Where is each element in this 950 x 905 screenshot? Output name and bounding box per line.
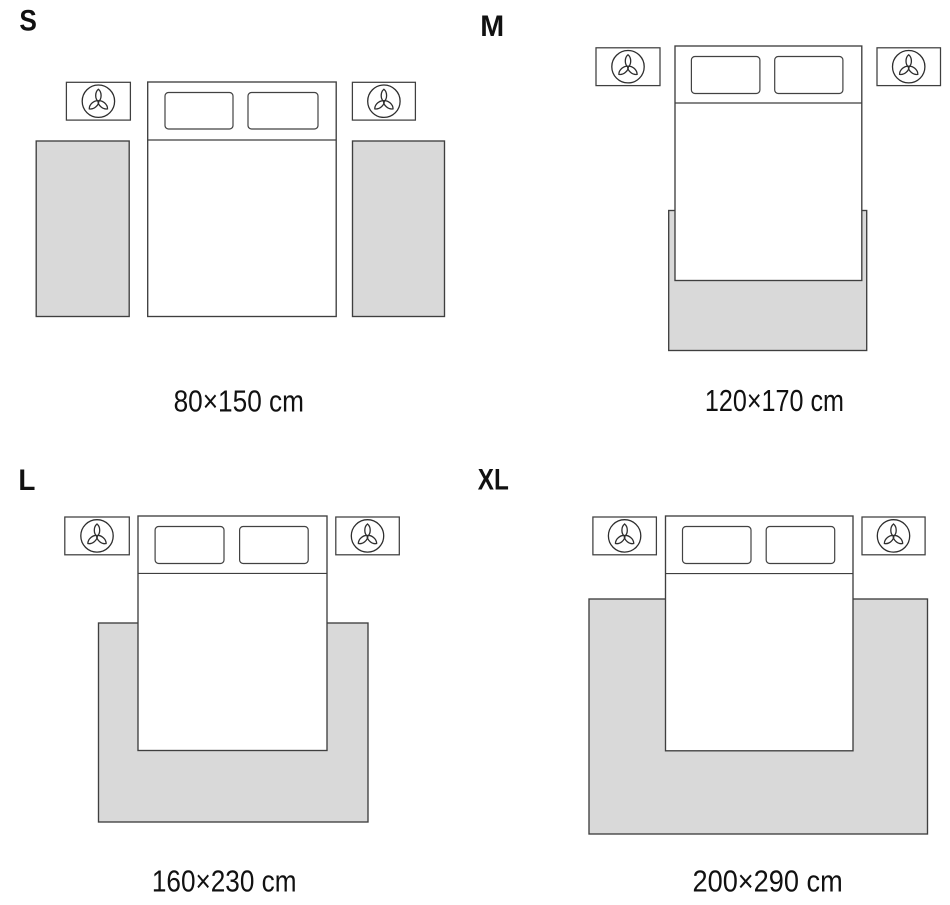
svg-text:L: L bbox=[18, 464, 35, 497]
svg-text:XL: XL bbox=[478, 464, 509, 497]
svg-text:80×150 cm: 80×150 cm bbox=[174, 384, 304, 419]
svg-text:200×290 cm: 200×290 cm bbox=[693, 863, 843, 898]
svg-text:M: M bbox=[480, 10, 504, 43]
svg-text:120×170 cm: 120×170 cm bbox=[705, 383, 844, 418]
svg-text:S: S bbox=[19, 4, 37, 37]
svg-text:160×230 cm: 160×230 cm bbox=[152, 864, 297, 899]
